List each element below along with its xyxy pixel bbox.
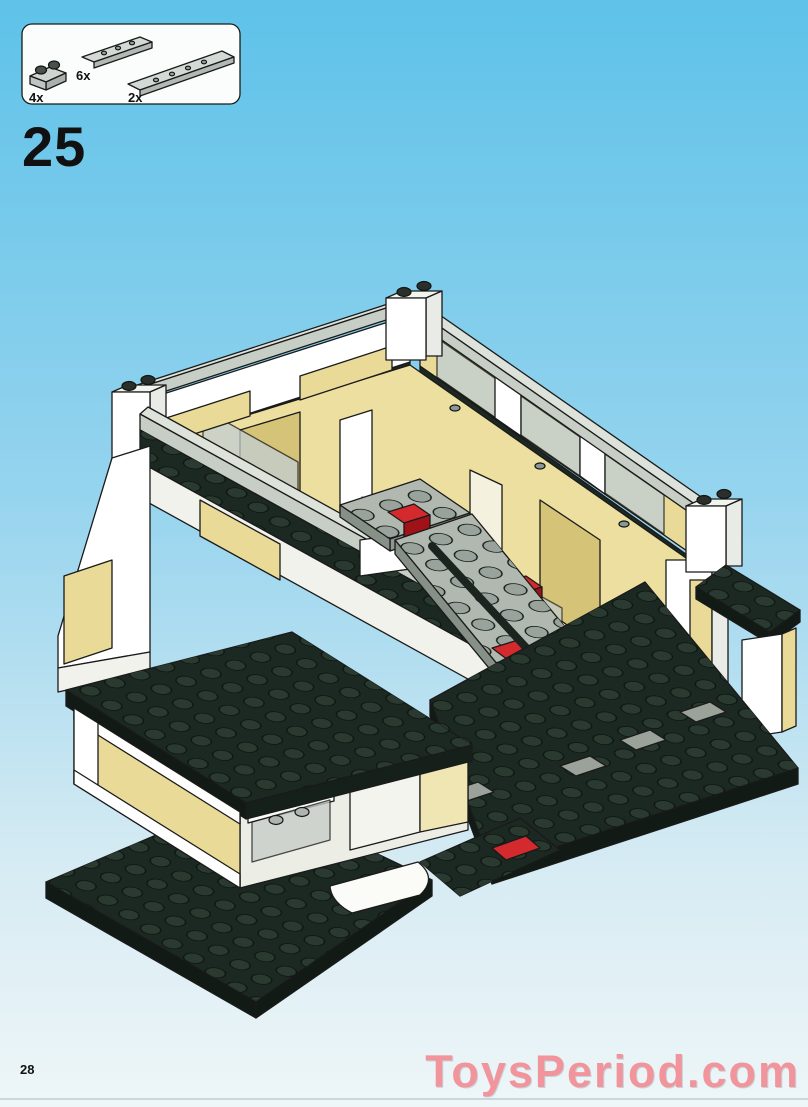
left-facade	[58, 446, 150, 692]
watermark: ToysPeriod.com	[425, 1046, 800, 1098]
step-illustration	[0, 0, 808, 1107]
back-corner-pillar	[386, 282, 442, 361]
part-qty-4x: 4x	[29, 90, 43, 105]
page-number: 28	[20, 1062, 34, 1077]
right-wall-pillar	[686, 490, 742, 573]
instruction-page: 25 4x 6x 2x 28 ToysPeriod.com	[0, 0, 808, 1107]
lego-building-model	[46, 282, 800, 1019]
step-number: 25	[22, 114, 86, 179]
part-qty-6x: 6x	[76, 68, 90, 83]
part-qty-2x: 2x	[128, 90, 142, 105]
